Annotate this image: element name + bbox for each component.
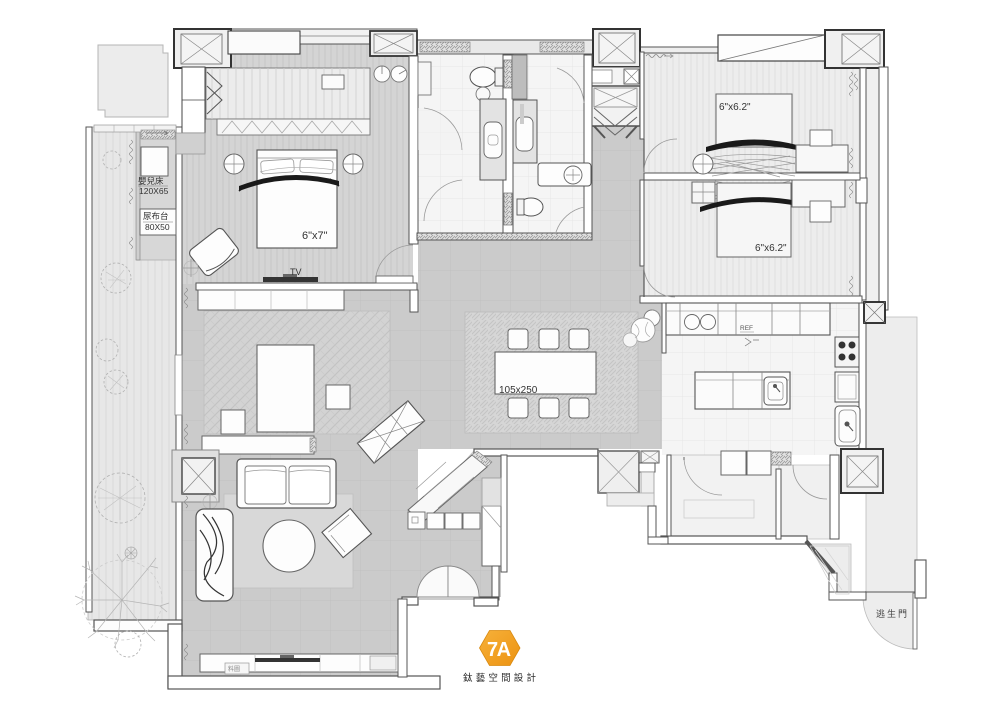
svg-text:逃生門: 逃生門 (876, 608, 909, 619)
svg-text:料圖: 料圖 (228, 665, 240, 673)
svg-text:120X65: 120X65 (139, 186, 169, 196)
svg-text:鈦藝空間設計: 鈦藝空間設計 (463, 672, 539, 684)
svg-text:嬰兒床: 嬰兒床 (138, 176, 164, 186)
svg-text:6"x6.2": 6"x6.2" (719, 102, 751, 113)
svg-text:105x250: 105x250 (499, 385, 538, 396)
svg-text:6"x6.2": 6"x6.2" (755, 243, 787, 254)
svg-text:7A: 7A (487, 639, 511, 661)
svg-text:尿布台: 尿布台 (143, 211, 169, 221)
svg-text:6"x7": 6"x7" (302, 230, 328, 242)
svg-text:REF: REF (740, 325, 753, 332)
svg-text:80X50: 80X50 (145, 222, 170, 232)
svg-text:TV: TV (290, 267, 302, 277)
